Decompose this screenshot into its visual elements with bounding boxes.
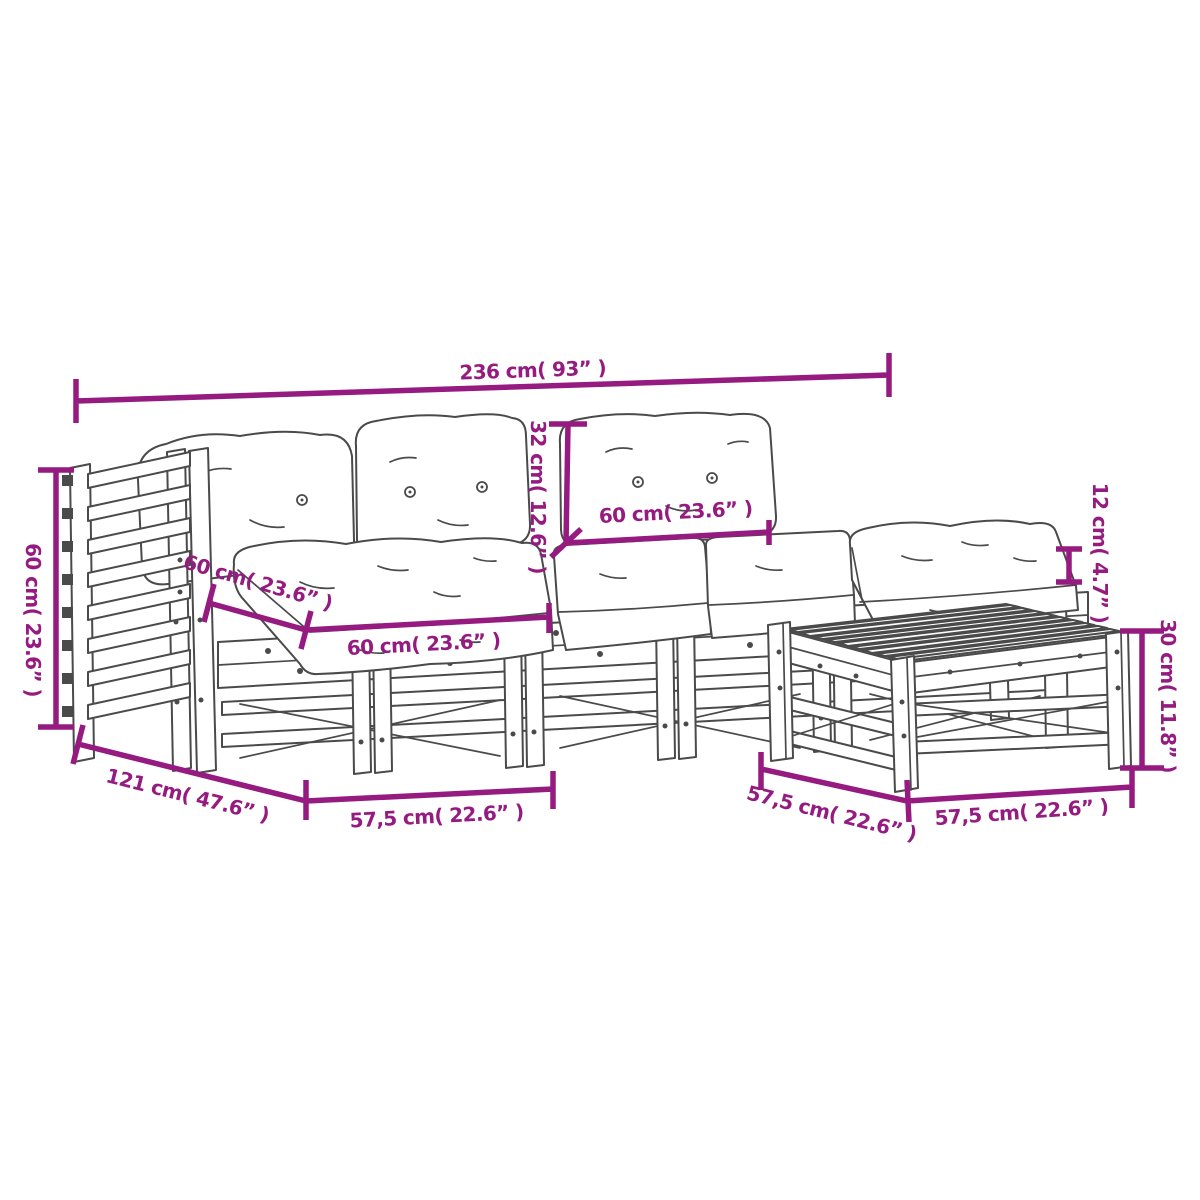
seat-cushion-3 [706, 531, 855, 638]
table-rail-right-lower [904, 732, 1126, 754]
dim-module-width-left-label: 57,5 cm( 22.6” ) [349, 799, 524, 832]
dim-cushion-thickness-label: 12 cm( 4.7” ) [1088, 483, 1112, 623]
table-front-leg [891, 656, 918, 792]
dim-overall-width-label: 236 cm( 93” ) [459, 355, 607, 384]
diagram-canvas: 236 cm( 93” ) 60 cm( 23.6” ) 32 cm( 12.6… [0, 0, 1200, 1200]
corner-armrest [62, 448, 216, 773]
dim-module-width-left: 57,5 cm( 22.6” ) [306, 771, 553, 833]
table-left-leg [768, 622, 793, 761]
dim-overall-width: 236 cm( 93” ) [76, 353, 889, 423]
dim-back-cushion-height-label: 32 cm( 12.6” ) [526, 420, 550, 574]
dim-module-width-right: 57,5 cm( 22.6” ) [907, 768, 1132, 830]
dim-stool-height-label: 30 cm( 11.8” ) [1156, 619, 1180, 773]
product-dimension-diagram: 236 cm( 93” ) 60 cm( 23.6” ) 32 cm( 12.6… [0, 0, 1200, 1200]
dim-module-width-mid-label: 57,5 cm( 22.6” ) [744, 781, 919, 846]
furniture-line-art [62, 413, 1131, 792]
dim-armrest-height-label: 60 cm( 23.6” ) [21, 543, 45, 697]
back-cushion-right [560, 413, 776, 546]
back-cushion-middle [356, 414, 530, 556]
seat-cushion-2 [554, 538, 711, 650]
